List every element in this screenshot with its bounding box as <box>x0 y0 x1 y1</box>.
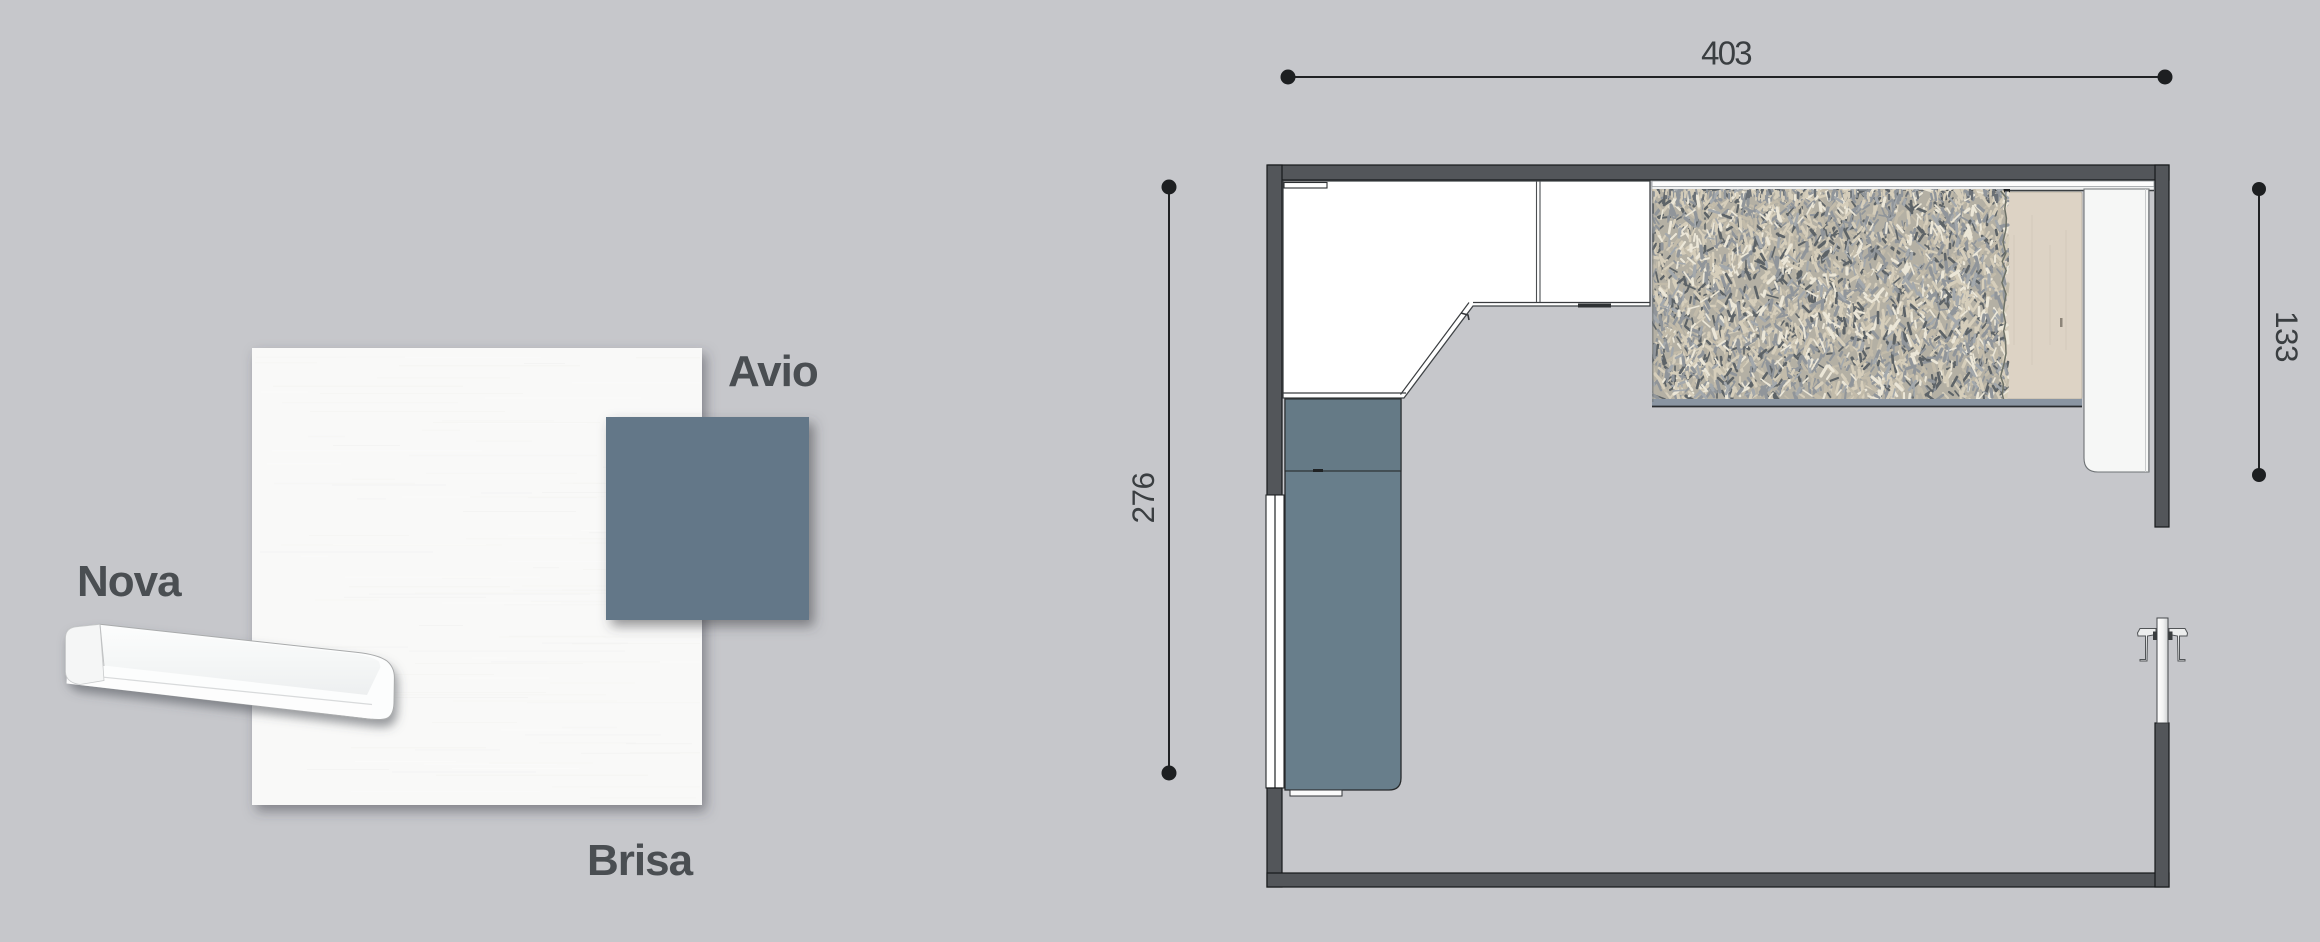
svg-text:133: 133 <box>2269 311 2305 362</box>
svg-text:Avio: Avio <box>728 347 818 396</box>
svg-text:Brisa: Brisa <box>587 836 694 885</box>
svg-text:Nova: Nova <box>77 557 182 606</box>
svg-text:276: 276 <box>1125 472 1161 523</box>
svg-text:403: 403 <box>1701 35 1751 72</box>
